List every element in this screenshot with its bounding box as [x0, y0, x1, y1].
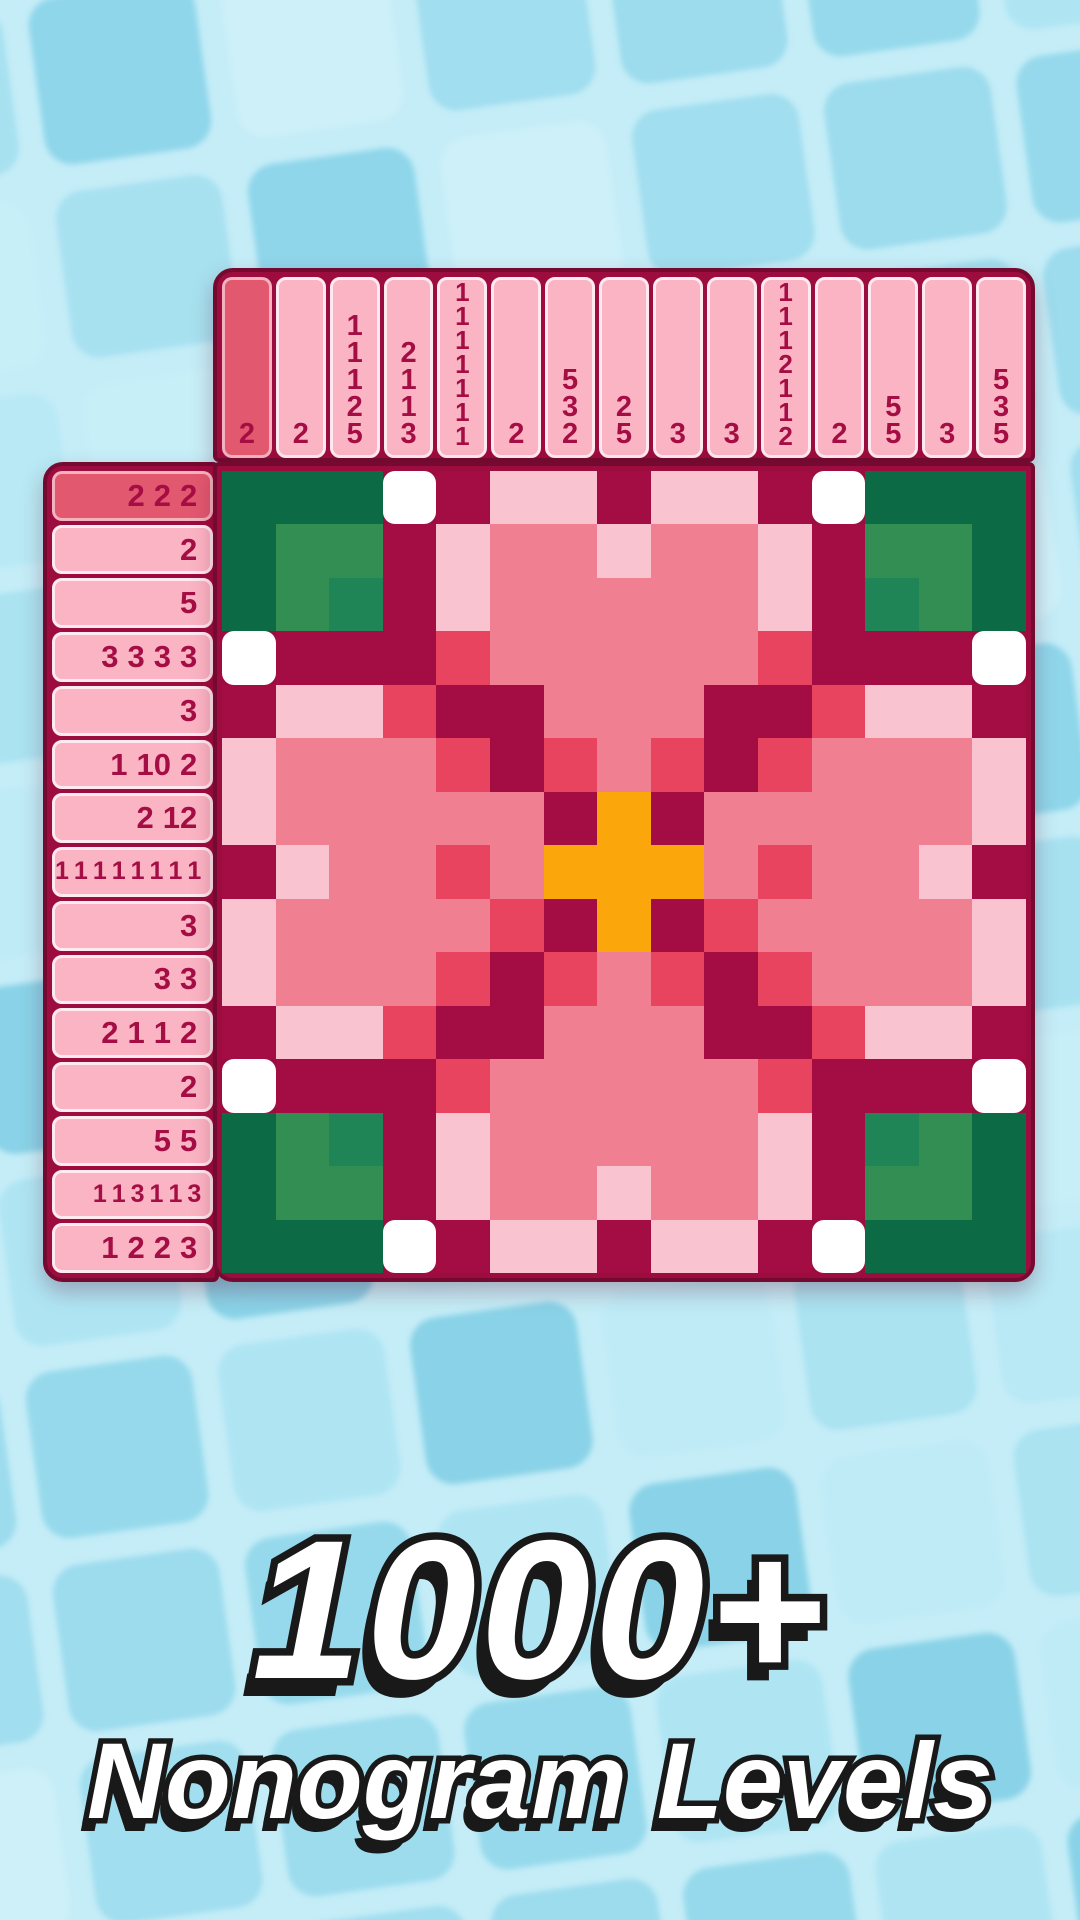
- grid-cell[interactable]: [597, 738, 651, 791]
- grid-cell[interactable]: [704, 524, 758, 577]
- grid-cell[interactable]: [276, 1113, 330, 1166]
- grid-cell[interactable]: [865, 578, 919, 631]
- grid-cell[interactable]: [222, 738, 276, 791]
- row-clue-cell: 2112: [52, 1008, 213, 1058]
- grid-cell[interactable]: [436, 685, 490, 738]
- clue-number: 1: [112, 1180, 126, 1209]
- grid-cell[interactable]: [758, 1113, 812, 1166]
- grid-cell[interactable]: [490, 578, 544, 631]
- grid-cell[interactable]: [812, 1006, 866, 1059]
- grid-cell[interactable]: [972, 738, 1026, 791]
- clue-number: 3: [154, 961, 171, 997]
- row-clues-panel: 2222533333110221211111111333211225511311…: [43, 462, 219, 1282]
- grid-cell[interactable]: [222, 578, 276, 631]
- grid-cell[interactable]: [651, 792, 705, 845]
- grid-cell[interactable]: [812, 1059, 866, 1112]
- grid-cell[interactable]: [704, 578, 758, 631]
- grid-cell[interactable]: [597, 1059, 651, 1112]
- clue-number: 2: [101, 1015, 118, 1051]
- grid-cell[interactable]: [383, 631, 437, 684]
- row-clue-cell: 212: [52, 793, 213, 843]
- grid-cell[interactable]: [222, 1220, 276, 1273]
- grid-cell[interactable]: [972, 685, 1026, 738]
- grid-cell[interactable]: [329, 1059, 383, 1112]
- clue-number: 2: [128, 478, 145, 514]
- grid-cell[interactable]: [919, 578, 973, 631]
- grid-cell[interactable]: [972, 845, 1026, 898]
- grid-cell[interactable]: [704, 631, 758, 684]
- grid-cell[interactable]: [276, 471, 330, 524]
- column-clue-cell: 2: [276, 277, 326, 458]
- grid-cell[interactable]: [544, 1166, 598, 1219]
- clue-number: 1: [347, 313, 363, 340]
- grid-cell[interactable]: [758, 1166, 812, 1219]
- grid-cell[interactable]: [383, 578, 437, 631]
- grid-cell[interactable]: [597, 899, 651, 952]
- grid-cell[interactable]: [276, 792, 330, 845]
- grid-cell[interactable]: [704, 1220, 758, 1273]
- clue-number: 1: [347, 367, 363, 394]
- grid-cell[interactable]: [597, 685, 651, 738]
- grid-cell[interactable]: [329, 1166, 383, 1219]
- clue-number: 3: [562, 394, 578, 421]
- grid-cell[interactable]: [704, 845, 758, 898]
- grid-cell[interactable]: [919, 1059, 973, 1112]
- grid-cell[interactable]: [865, 1220, 919, 1273]
- grid-cell[interactable]: [329, 845, 383, 898]
- grid-cell[interactable]: [865, 1166, 919, 1219]
- grid-cell[interactable]: [222, 845, 276, 898]
- grid-cell[interactable]: [597, 1006, 651, 1059]
- clue-number: 2: [180, 1015, 197, 1051]
- grid-cell[interactable]: [651, 1166, 705, 1219]
- grid-cell[interactable]: [436, 631, 490, 684]
- column-clue-cell: 1111111: [437, 277, 487, 458]
- grid-cell[interactable]: [651, 1220, 705, 1273]
- grid-cell[interactable]: [383, 845, 437, 898]
- grid-cell[interactable]: [383, 899, 437, 952]
- grid-cell[interactable]: [865, 952, 919, 1005]
- clue-number: 1: [400, 367, 416, 394]
- grid-cell[interactable]: [490, 685, 544, 738]
- grid-cell[interactable]: [651, 578, 705, 631]
- clue-number: 3: [400, 421, 416, 448]
- grid-cell[interactable]: [972, 1006, 1026, 1059]
- grid-cell[interactable]: [919, 631, 973, 684]
- clue-number: 3: [128, 639, 145, 675]
- grid-cell[interactable]: [329, 471, 383, 524]
- grid-cell[interactable]: [329, 685, 383, 738]
- clue-number: 3: [101, 639, 118, 675]
- grid-cell[interactable]: [972, 471, 1026, 524]
- column-clue-cell: 3: [707, 277, 757, 458]
- grid-cell[interactable]: [865, 792, 919, 845]
- grid-cell[interactable]: [704, 952, 758, 1005]
- grid-cell[interactable]: [704, 1113, 758, 1166]
- grid-cell[interactable]: [597, 631, 651, 684]
- grid-cell[interactable]: [704, 738, 758, 791]
- grid-cell[interactable]: [597, 1220, 651, 1273]
- grid-cell[interactable]: [329, 578, 383, 631]
- grid-cell[interactable]: [597, 845, 651, 898]
- grid-cell[interactable]: [758, 685, 812, 738]
- grid-cell[interactable]: [597, 524, 651, 577]
- clue-number: 1: [400, 394, 416, 421]
- grid-cell[interactable]: [919, 952, 973, 1005]
- grid-cell[interactable]: [276, 899, 330, 952]
- column-clue-cell: 1112112: [761, 277, 811, 458]
- clue-number: 1: [93, 1180, 107, 1209]
- grid-cell[interactable]: [597, 792, 651, 845]
- caption-nonogram-levels: Nonogram Levels: [0, 1724, 1080, 1837]
- grid-cell[interactable]: [490, 952, 544, 1005]
- column-clues-panel: 2211125211311111112532253311121122553535: [213, 268, 1035, 462]
- grid-cell[interactable]: [490, 631, 544, 684]
- clue-number: 5: [180, 1123, 197, 1159]
- grid-cell[interactable]: [490, 792, 544, 845]
- grid-cell[interactable]: [436, 952, 490, 1005]
- column-clue-cell: 535: [976, 277, 1026, 458]
- grid-cell[interactable]: [597, 578, 651, 631]
- grid-cell[interactable]: [919, 1166, 973, 1219]
- grid-cell[interactable]: [972, 952, 1026, 1005]
- clue-number: 3: [993, 394, 1009, 421]
- grid-cell[interactable]: [812, 471, 866, 524]
- clue-number: 3: [180, 961, 197, 997]
- clue-number: 1: [93, 857, 107, 886]
- grid-cell[interactable]: [812, 685, 866, 738]
- clue-number: 1: [168, 857, 182, 886]
- clue-number: 2: [562, 421, 578, 448]
- grid-cell[interactable]: [812, 631, 866, 684]
- grid-cell[interactable]: [436, 1113, 490, 1166]
- grid-cell[interactable]: [276, 1220, 330, 1273]
- grid-cell[interactable]: [329, 1113, 383, 1166]
- grid-cell[interactable]: [436, 524, 490, 577]
- grid-cell[interactable]: [704, 1166, 758, 1219]
- clue-number: 5: [180, 585, 197, 621]
- grid-cell[interactable]: [758, 899, 812, 952]
- clue-number: 3: [180, 908, 197, 944]
- clue-number: 1: [150, 857, 164, 886]
- grid-cell[interactable]: [383, 792, 437, 845]
- grid-cell[interactable]: [222, 524, 276, 577]
- grid-cell[interactable]: [919, 899, 973, 952]
- grid-cell[interactable]: [544, 845, 598, 898]
- clue-number: 2: [347, 394, 363, 421]
- clue-number: 2: [137, 800, 154, 836]
- grid-cell[interactable]: [972, 578, 1026, 631]
- grid-cell[interactable]: [865, 471, 919, 524]
- grid-cell[interactable]: [651, 845, 705, 898]
- grid-cell[interactable]: [436, 899, 490, 952]
- grid-cell[interactable]: [490, 524, 544, 577]
- grid-cell[interactable]: [758, 792, 812, 845]
- grid-cell[interactable]: [758, 952, 812, 1005]
- grid-cell[interactable]: [276, 738, 330, 791]
- grid-cell[interactable]: [436, 1166, 490, 1219]
- grid-cell[interactable]: [812, 1220, 866, 1273]
- caption-1000-plus: 1000+: [0, 1506, 1080, 1714]
- grid-cell[interactable]: [651, 952, 705, 1005]
- grid-cell[interactable]: [436, 738, 490, 791]
- grid-cell[interactable]: [383, 1220, 437, 1273]
- clue-number: 3: [154, 639, 171, 675]
- grid-cell[interactable]: [276, 685, 330, 738]
- grid-cell[interactable]: [544, 685, 598, 738]
- clue-number: 5: [347, 421, 363, 448]
- grid-cell[interactable]: [276, 631, 330, 684]
- grid-cell[interactable]: [758, 631, 812, 684]
- clue-number: 1: [168, 1180, 182, 1209]
- grid-cell[interactable]: [651, 631, 705, 684]
- grid-cell[interactable]: [544, 471, 598, 524]
- grid-cell[interactable]: [383, 738, 437, 791]
- grid-cell[interactable]: [704, 1006, 758, 1059]
- grid-cell[interactable]: [651, 1113, 705, 1166]
- grid-cell[interactable]: [972, 524, 1026, 577]
- grid-cell[interactable]: [544, 1113, 598, 1166]
- grid-cell[interactable]: [704, 1059, 758, 1112]
- clue-number: 1: [101, 1230, 118, 1266]
- grid-cell[interactable]: [651, 1059, 705, 1112]
- grid-cell[interactable]: [544, 524, 598, 577]
- grid-cell[interactable]: [329, 738, 383, 791]
- grid-cell[interactable]: [383, 952, 437, 1005]
- grid-cell[interactable]: [383, 1113, 437, 1166]
- grid-cell[interactable]: [758, 524, 812, 577]
- grid-cell[interactable]: [919, 845, 973, 898]
- grid-cell[interactable]: [222, 685, 276, 738]
- grid-cell[interactable]: [436, 1006, 490, 1059]
- clue-number: 2: [778, 424, 792, 448]
- grid-cell[interactable]: [865, 1006, 919, 1059]
- grid-cell[interactable]: [919, 738, 973, 791]
- grid-cell[interactable]: [276, 845, 330, 898]
- grid-cell[interactable]: [544, 952, 598, 1005]
- grid-cell[interactable]: [704, 471, 758, 524]
- grid-cell[interactable]: [919, 685, 973, 738]
- grid-cell[interactable]: [865, 738, 919, 791]
- grid-cell[interactable]: [436, 792, 490, 845]
- grid-cell[interactable]: [383, 1166, 437, 1219]
- column-clue-cell: 3: [653, 277, 703, 458]
- grid-cell[interactable]: [222, 1113, 276, 1166]
- grid-cell[interactable]: [704, 899, 758, 952]
- grid-cell[interactable]: [812, 952, 866, 1005]
- grid-cell[interactable]: [383, 471, 437, 524]
- grid-cell[interactable]: [276, 578, 330, 631]
- grid-cell[interactable]: [490, 1166, 544, 1219]
- grid-cell[interactable]: [812, 792, 866, 845]
- grid-cell[interactable]: [222, 899, 276, 952]
- grid-cell[interactable]: [597, 471, 651, 524]
- clue-number: 3: [187, 1180, 201, 1209]
- grid-cell[interactable]: [812, 738, 866, 791]
- grid-cell[interactable]: [597, 952, 651, 1005]
- grid-cell[interactable]: [758, 471, 812, 524]
- grid-cell[interactable]: [919, 792, 973, 845]
- grid-cell[interactable]: [972, 1166, 1026, 1219]
- grid-cell[interactable]: [651, 899, 705, 952]
- grid-cell[interactable]: [865, 899, 919, 952]
- grid-cell[interactable]: [972, 792, 1026, 845]
- grid-cell[interactable]: [436, 1059, 490, 1112]
- grid-cell[interactable]: [758, 1006, 812, 1059]
- clue-number: 2: [831, 421, 847, 448]
- grid-cell[interactable]: [972, 1059, 1026, 1112]
- grid-cell[interactable]: [222, 1059, 276, 1112]
- grid-cell[interactable]: [329, 631, 383, 684]
- grid-cell[interactable]: [865, 1113, 919, 1166]
- grid-cell[interactable]: [490, 1059, 544, 1112]
- grid-cell[interactable]: [222, 471, 276, 524]
- grid-cell[interactable]: [972, 1113, 1026, 1166]
- grid-cell[interactable]: [812, 1166, 866, 1219]
- grid-cell[interactable]: [222, 952, 276, 1005]
- grid-cell[interactable]: [544, 1006, 598, 1059]
- clue-number: 2: [508, 421, 524, 448]
- grid-cell[interactable]: [436, 845, 490, 898]
- clue-number: 1: [150, 1180, 164, 1209]
- grid-cell[interactable]: [919, 1006, 973, 1059]
- grid-cell[interactable]: [919, 471, 973, 524]
- clue-number: 3: [131, 1180, 145, 1209]
- grid-cell[interactable]: [329, 952, 383, 1005]
- column-clue-cell: 25: [599, 277, 649, 458]
- clue-number: 1: [110, 747, 127, 783]
- grid-cell[interactable]: [276, 1166, 330, 1219]
- grid-cell[interactable]: [544, 1059, 598, 1112]
- grid-cell[interactable]: [329, 899, 383, 952]
- row-clue-cell: 113113: [52, 1170, 213, 1220]
- grid-cell[interactable]: [812, 524, 866, 577]
- grid-cell[interactable]: [865, 631, 919, 684]
- grid-cell[interactable]: [919, 524, 973, 577]
- grid-cell[interactable]: [383, 524, 437, 577]
- grid-cell[interactable]: [544, 738, 598, 791]
- grid-cell[interactable]: [490, 845, 544, 898]
- grid-cell[interactable]: [544, 899, 598, 952]
- grid-cell[interactable]: [919, 1220, 973, 1273]
- grid-cell[interactable]: [758, 1220, 812, 1273]
- clue-number: 2: [239, 421, 255, 448]
- grid-cell[interactable]: [544, 1220, 598, 1273]
- grid-cell[interactable]: [222, 1006, 276, 1059]
- grid-cell[interactable]: [222, 792, 276, 845]
- grid-cell[interactable]: [758, 738, 812, 791]
- clue-number: 5: [616, 421, 632, 448]
- grid-cell[interactable]: [812, 899, 866, 952]
- clue-number: 5: [154, 1123, 171, 1159]
- grid-cell[interactable]: [758, 1059, 812, 1112]
- grid-cell[interactable]: [651, 471, 705, 524]
- grid-cell[interactable]: [972, 1220, 1026, 1273]
- grid-cell[interactable]: [919, 1113, 973, 1166]
- grid-cell[interactable]: [865, 845, 919, 898]
- grid-cell[interactable]: [436, 578, 490, 631]
- clue-number: 2: [400, 340, 416, 367]
- clue-number: 2: [128, 1230, 145, 1266]
- clue-number: 12: [163, 800, 197, 836]
- grid-cell[interactable]: [651, 685, 705, 738]
- grid-cell[interactable]: [436, 471, 490, 524]
- column-clue-cell: 2: [491, 277, 541, 458]
- grid-cell[interactable]: [544, 792, 598, 845]
- grid-cell[interactable]: [812, 845, 866, 898]
- grid-cell[interactable]: [704, 792, 758, 845]
- grid-cell[interactable]: [972, 631, 1026, 684]
- grid-cell[interactable]: [865, 524, 919, 577]
- puzzle-grid: [213, 462, 1035, 1282]
- grid-cell[interactable]: [276, 1059, 330, 1112]
- clue-number: 1: [128, 1015, 145, 1051]
- clue-number: 2: [180, 1069, 197, 1105]
- grid-cell[interactable]: [865, 1059, 919, 1112]
- clue-number: 1: [131, 857, 145, 886]
- grid-cell[interactable]: [329, 524, 383, 577]
- grid-cell[interactable]: [758, 845, 812, 898]
- grid-cell[interactable]: [329, 1220, 383, 1273]
- grid-cell[interactable]: [704, 685, 758, 738]
- grid-cell[interactable]: [651, 1006, 705, 1059]
- grid-cell[interactable]: [865, 685, 919, 738]
- grid-cell[interactable]: [222, 631, 276, 684]
- grid-cell[interactable]: [329, 1006, 383, 1059]
- clue-number: 5: [993, 367, 1009, 394]
- grid-cell[interactable]: [276, 952, 330, 1005]
- grid-cell[interactable]: [812, 1113, 866, 1166]
- row-clue-cell: 2: [52, 525, 213, 575]
- row-clue-cell: 55: [52, 1116, 213, 1166]
- grid-cell[interactable]: [758, 578, 812, 631]
- column-clue-cell: 2: [222, 277, 272, 458]
- grid-cell[interactable]: [490, 1220, 544, 1273]
- grid-cell[interactable]: [276, 1006, 330, 1059]
- grid-cell[interactable]: [490, 899, 544, 952]
- clue-number: 3: [180, 639, 197, 675]
- grid-cell[interactable]: [544, 578, 598, 631]
- row-clue-cell: 33: [52, 955, 213, 1005]
- column-clue-cell: 55: [868, 277, 918, 458]
- grid-cell[interactable]: [222, 1166, 276, 1219]
- grid-cell[interactable]: [490, 1006, 544, 1059]
- grid-cell[interactable]: [544, 631, 598, 684]
- grid-cell[interactable]: [490, 471, 544, 524]
- grid-cell[interactable]: [329, 792, 383, 845]
- row-clue-cell: 1102: [52, 740, 213, 790]
- clue-number: 5: [993, 421, 1009, 448]
- column-clue-cell: 3: [922, 277, 972, 458]
- row-clue-cell: 3: [52, 686, 213, 736]
- grid-cell[interactable]: [972, 899, 1026, 952]
- grid-cell[interactable]: [383, 1059, 437, 1112]
- grid-cell[interactable]: [383, 1006, 437, 1059]
- grid-cell[interactable]: [436, 1220, 490, 1273]
- clue-number: 1: [55, 857, 69, 886]
- column-clue-cell: 532: [545, 277, 595, 458]
- grid-cell[interactable]: [812, 578, 866, 631]
- grid-cell[interactable]: [597, 1113, 651, 1166]
- row-clue-cell: 5: [52, 578, 213, 628]
- grid-cell[interactable]: [651, 524, 705, 577]
- grid-cell[interactable]: [276, 524, 330, 577]
- grid-cell[interactable]: [597, 1166, 651, 1219]
- grid-cell[interactable]: [651, 738, 705, 791]
- grid-cell[interactable]: [490, 1113, 544, 1166]
- grid-cell[interactable]: [490, 738, 544, 791]
- grid-cell[interactable]: [383, 685, 437, 738]
